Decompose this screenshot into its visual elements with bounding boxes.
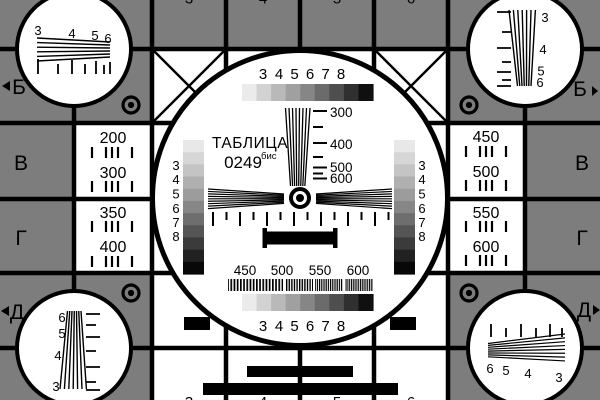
step-digit: 8 (337, 66, 345, 83)
grayscale-step (394, 164, 415, 177)
row-label-right: Б (573, 78, 587, 101)
grayscale-step (271, 84, 286, 101)
step-digit: 4 (418, 172, 425, 187)
wedge-digit: 4 (539, 42, 546, 57)
card-title: ТАБЛИЦА (212, 135, 288, 152)
column-digit-top: 3 (185, 0, 193, 8)
grayscale-step (242, 84, 257, 101)
grayscale-step (183, 164, 204, 177)
frequency-burst-strip (228, 279, 373, 291)
corner-circle-outline (17, 0, 131, 106)
grayscale-step (344, 294, 359, 311)
grayscale-step (394, 225, 415, 238)
column-digit-bottom: 4 (259, 394, 267, 400)
column-digit-top: 6 (407, 0, 415, 8)
step-digit: 8 (418, 229, 425, 244)
black-square-right (390, 317, 416, 330)
test-pattern-canvas: 3 4 5 6 3 4 5 6 6 5 4 3 6 5 4 3 (0, 0, 600, 400)
burst-label: 450 (234, 263, 257, 278)
grayscale-step (183, 237, 204, 250)
step-digit: 5 (172, 187, 179, 202)
grayscale-step (183, 201, 204, 214)
wedge-digit: 3 (555, 370, 562, 385)
corner-circle-top-right: 3 4 5 6 (468, 0, 582, 106)
wedge-digit: 5 (502, 363, 509, 378)
card-number: 0249 (224, 153, 262, 172)
corner-circle-bottom-right: 6 5 4 3 (468, 291, 582, 400)
grayscale-step (394, 237, 415, 250)
step-digit: 7 (321, 318, 329, 335)
grayscale-step (300, 84, 315, 101)
step-digit: 7 (172, 215, 179, 230)
bottom-bar-short (247, 366, 353, 377)
black-square-left (184, 317, 210, 330)
step-digit: 6 (172, 201, 179, 216)
frequency-label: 300 (330, 105, 353, 120)
grayscale-step (344, 84, 359, 101)
wedge-digit: 3 (52, 379, 59, 394)
grayscale-step (394, 140, 415, 153)
grayscale-step (394, 177, 415, 190)
row-label-left: Г (15, 227, 26, 250)
cell-number: 350 (100, 205, 127, 222)
grayscale-step (329, 84, 344, 101)
grayscale-step (394, 189, 415, 202)
grayscale-step (394, 250, 415, 263)
row-label-right: Д (577, 299, 591, 322)
wedge-digit: 5 (91, 28, 98, 43)
step-digit: 8 (172, 229, 179, 244)
grayscale-step (394, 262, 415, 275)
bottom-bar-long (203, 383, 398, 395)
frequency-label: 400 (330, 137, 353, 152)
step-digit: 6 (418, 201, 425, 216)
grayscale-step (183, 189, 204, 202)
card-number-suffix: бис (261, 151, 277, 162)
wedge-digit: 4 (54, 348, 61, 363)
row-label-left: Б (12, 76, 26, 99)
row-label-right: В (575, 152, 589, 175)
grayscale-step (183, 152, 204, 165)
grayscale-strip-bottom (242, 294, 374, 311)
step-digit: 3 (418, 158, 425, 173)
step-digit: 4 (172, 172, 179, 187)
grayscale-step (183, 250, 204, 263)
grayscale-strip-top (242, 84, 374, 101)
corner-circle-outline (468, 0, 582, 106)
cell-number: 550 (473, 205, 500, 222)
burst-label: 550 (309, 263, 332, 278)
tv-test-pattern-card: 3 4 5 6 3 4 5 6 6 5 4 3 6 5 4 3 (0, 0, 600, 400)
step-digit: 8 (337, 318, 345, 335)
grayscale-step (315, 84, 330, 101)
cell-number: 200 (100, 130, 127, 147)
cell-number: 450 (473, 129, 500, 146)
burst-label: 500 (271, 263, 294, 278)
grayscale-step (394, 201, 415, 214)
wedge-digit: 5 (58, 326, 65, 341)
step-digit: 3 (259, 318, 267, 335)
grayscale-step (183, 177, 204, 190)
grayscale-step (257, 84, 272, 101)
cell-number: 600 (473, 239, 500, 256)
step-digit: 6 (306, 318, 314, 335)
step-digit: 7 (418, 215, 425, 230)
wedge-digit: 3 (34, 23, 41, 38)
column-digit-top: 5 (333, 0, 341, 8)
wedge-digit: 4 (68, 26, 75, 41)
grayscale-step (394, 213, 415, 226)
frequency-label: 600 (330, 171, 353, 186)
column-digit-top: 4 (259, 0, 267, 8)
column-digit-bottom: 3 (185, 394, 193, 400)
wedge-digit: 3 (541, 10, 548, 25)
grayscale-step (315, 294, 330, 311)
wedge-digit: 6 (104, 31, 111, 46)
step-digit: 5 (418, 187, 425, 202)
wedge-digit: 6 (486, 361, 493, 376)
corner-circle-top-left: 3 4 5 6 (17, 0, 131, 106)
grayscale-column-left (183, 140, 204, 275)
cell-number: 400 (100, 239, 127, 256)
step-digit: 4 (275, 318, 283, 335)
wedge-digit: 6 (58, 310, 65, 325)
grayscale-step (183, 225, 204, 238)
row-label-left: Д (10, 301, 24, 324)
burst-label: 600 (347, 263, 370, 278)
step-digit: 5 (290, 66, 298, 83)
grayscale-step (394, 152, 415, 165)
grayscale-step (358, 294, 373, 311)
row-label-right: Г (576, 227, 587, 250)
corner-circle-bottom-left: 6 5 4 3 (17, 291, 131, 400)
step-digit: 6 (306, 66, 314, 83)
step-digit: 4 (275, 66, 283, 83)
grayscale-step (329, 294, 344, 311)
step-digit: 3 (172, 158, 179, 173)
grayscale-step (271, 294, 286, 311)
grayscale-step (358, 84, 373, 101)
grayscale-column-right (394, 140, 415, 275)
step-digit: 5 (290, 318, 298, 335)
grayscale-step (242, 294, 257, 311)
grayscale-step (257, 294, 272, 311)
wedge-digit: 6 (536, 75, 543, 90)
grayscale-step (286, 84, 301, 101)
row-label-left: В (14, 152, 28, 175)
grayscale-step (300, 294, 315, 311)
cell-number: 300 (100, 165, 127, 182)
wedge-digit: 4 (524, 366, 531, 381)
column-digit-bottom: 5 (333, 394, 341, 400)
step-digit: 7 (321, 66, 329, 83)
column-digit-bottom: 6 (407, 394, 415, 400)
grayscale-step (183, 262, 204, 275)
grayscale-step (183, 140, 204, 153)
cell-number: 500 (473, 164, 500, 181)
grayscale-step (286, 294, 301, 311)
step-digit: 3 (259, 66, 267, 83)
grayscale-step (183, 213, 204, 226)
